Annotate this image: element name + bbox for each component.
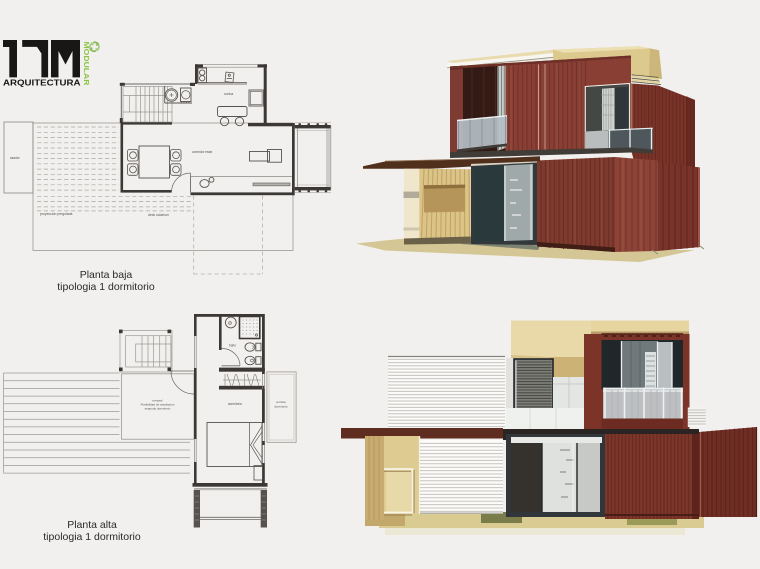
svg-text:asador: asador — [10, 156, 21, 160]
svg-text:Planta alta: Planta alta — [67, 519, 117, 531]
svg-text:deck solarium: deck solarium — [148, 213, 169, 217]
svg-text:comedor estar: comedor estar — [192, 150, 213, 154]
svg-text:cocina: cocina — [224, 92, 233, 96]
svg-text:ARQUITECTURA: ARQUITECTURA — [3, 79, 81, 88]
svg-text:proyeccion pergolada: proyeccion pergolada — [40, 212, 73, 216]
svg-text:Planta baja: Planta baja — [80, 269, 133, 281]
svg-text:baño: baño — [229, 344, 236, 348]
svg-text:tipologia 1 dormitorio: tipologia 1 dormitorio — [43, 531, 141, 543]
svg-text:dormitorio: dormitorio — [228, 402, 242, 406]
svg-text:segundo dormitorio: segundo dormitorio — [145, 407, 171, 411]
svg-text:terraza: terraza — [276, 400, 286, 404]
svg-text:tipologia 1 dormitorio: tipologia 1 dormitorio — [57, 281, 155, 293]
svg-text:dormitorio: dormitorio — [274, 404, 288, 408]
